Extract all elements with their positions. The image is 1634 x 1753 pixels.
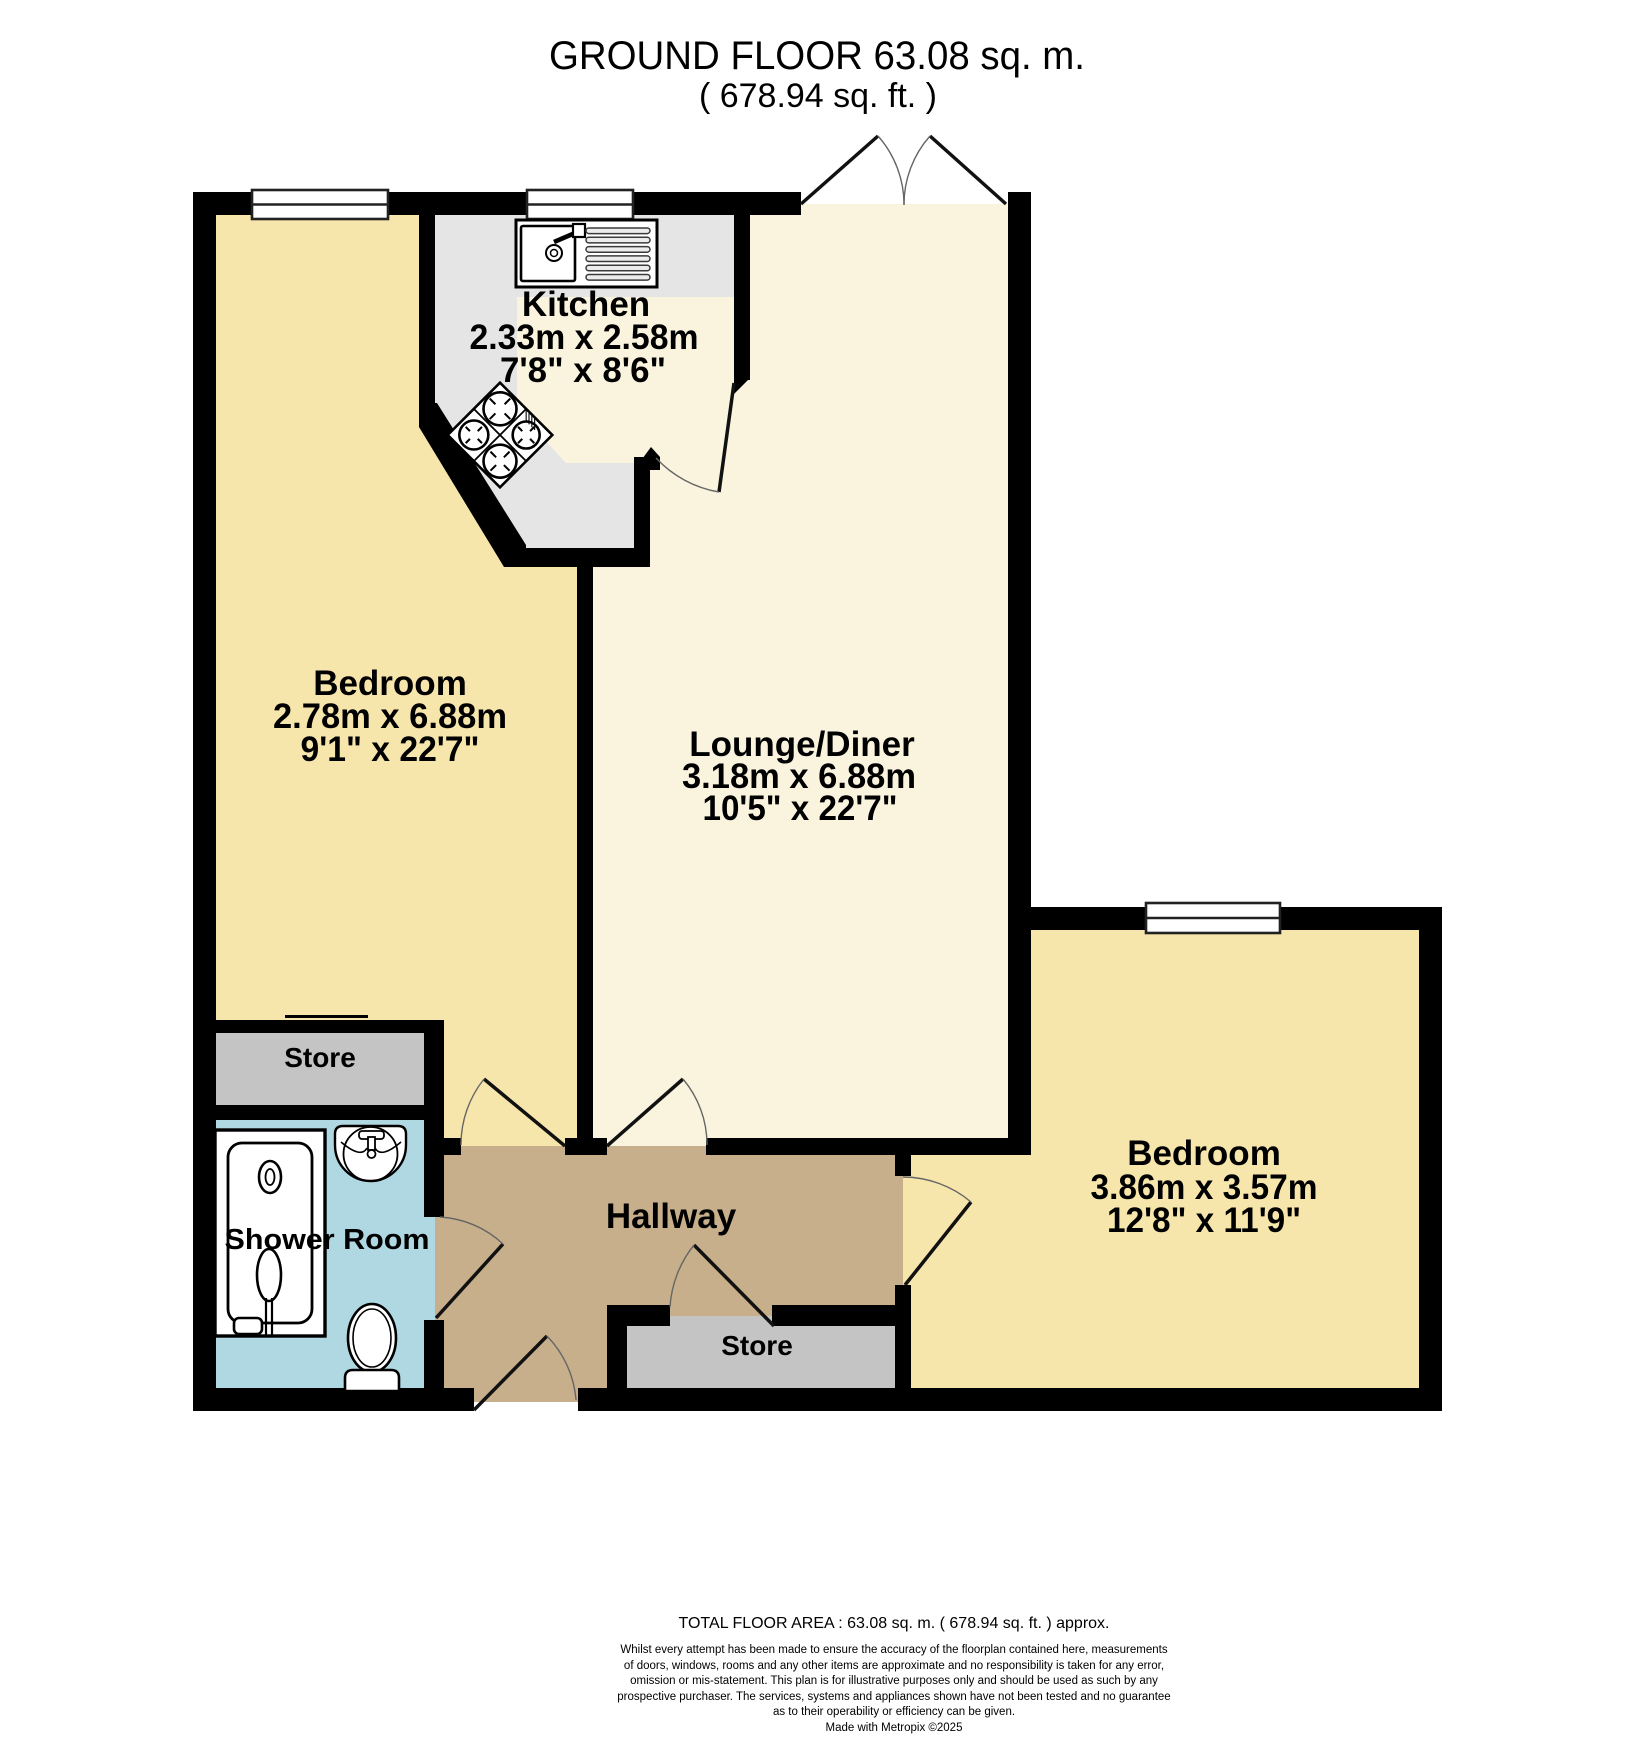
svg-text:( 678.94 sq. ft. ): ( 678.94 sq. ft. ) bbox=[699, 77, 937, 115]
svg-text:Made with Metropix ©2025: Made with Metropix ©2025 bbox=[826, 1722, 963, 1734]
svg-text:10'5" x 22'7": 10'5" x 22'7" bbox=[703, 789, 898, 828]
svg-text:Hallway: Hallway bbox=[606, 1197, 737, 1236]
svg-text:of doors, windows, rooms and a: of doors, windows, rooms and any other i… bbox=[624, 1660, 1164, 1672]
svg-text:7'8" x 8'6": 7'8" x 8'6" bbox=[500, 351, 666, 390]
svg-text:as to their operability or eff: as to their operability or efficiency ca… bbox=[773, 1706, 1015, 1718]
svg-text:GROUND FLOOR 63.08 sq. m.: GROUND FLOOR 63.08 sq. m. bbox=[549, 34, 1085, 78]
svg-text:omission or mis-statement. Thi: omission or mis-statement. This plan is … bbox=[630, 1675, 1158, 1687]
svg-text:12'8" x 11'9": 12'8" x 11'9" bbox=[1107, 1201, 1301, 1240]
svg-text:9'1" x 22'7": 9'1" x 22'7" bbox=[301, 730, 480, 769]
svg-text:prospective purchaser. The ser: prospective purchaser. The services, sys… bbox=[617, 1691, 1170, 1703]
svg-text:TOTAL FLOOR AREA : 63.08 sq. m: TOTAL FLOOR AREA : 63.08 sq. m. ( 678.94… bbox=[679, 1615, 1110, 1632]
svg-text:Store: Store bbox=[284, 1042, 356, 1073]
svg-text:Shower Room: Shower Room bbox=[225, 1224, 430, 1256]
svg-text:Whilst every attempt has been: Whilst every attempt has been made to en… bbox=[620, 1644, 1167, 1656]
svg-text:Store: Store bbox=[721, 1330, 793, 1361]
